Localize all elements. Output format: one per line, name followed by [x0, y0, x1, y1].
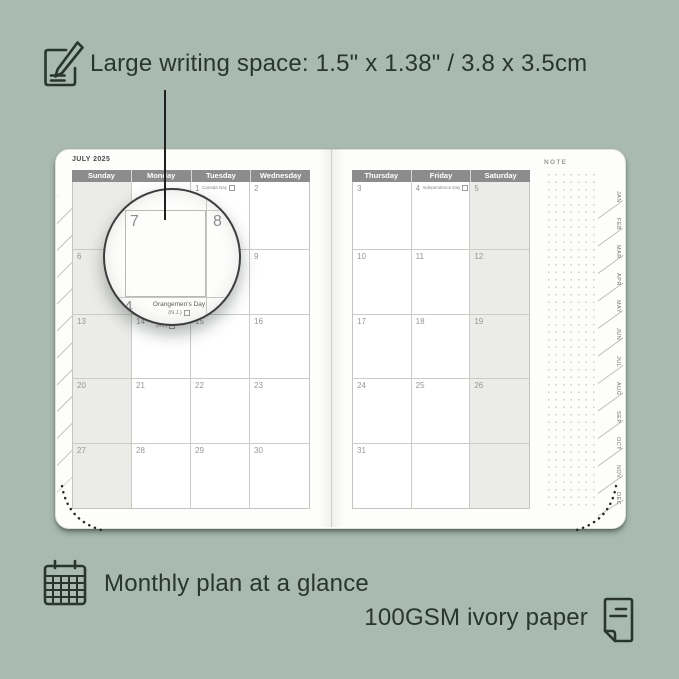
right-day-header-row: Thursday Friday Saturday: [352, 170, 530, 182]
day-header: Saturday: [470, 170, 530, 182]
day-header: Wednesday: [250, 170, 310, 182]
day-cell: 3: [353, 182, 412, 250]
day-cell: [470, 444, 529, 509]
day-cell: 16: [250, 315, 309, 380]
day-cell: 25: [412, 379, 471, 444]
day-cell: 31: [353, 444, 412, 509]
day-cell: 5: [470, 182, 529, 250]
day-cell: 11: [412, 250, 471, 315]
paper-icon: [597, 593, 637, 647]
day-cell: 26: [470, 379, 529, 444]
month-tab-jan: JAN: [605, 186, 621, 208]
day-header: Tuesday: [191, 170, 251, 182]
month-tab-feb: FEB: [605, 213, 621, 235]
month-tab-aug: AUG: [605, 378, 621, 400]
magnified-day: 8: [213, 213, 222, 231]
day-cell: 30: [250, 444, 309, 509]
month-tab-apr: APR: [605, 268, 621, 290]
pencil-note-icon: [40, 38, 84, 90]
day-cell: 19: [470, 315, 529, 380]
holiday-label: Canada Day: [202, 185, 247, 191]
month-tab-jun: JUN: [605, 323, 621, 345]
callout-pointer-line: [164, 90, 166, 220]
magnified-holiday-label: Orangemen's Day: [129, 301, 229, 308]
event-tag-icon: [184, 310, 190, 316]
month-tab-may: MAY: [605, 296, 621, 318]
event-tag-icon: [462, 185, 468, 191]
month-tab-mar: MAR: [605, 241, 621, 263]
day-header: Thursday: [352, 170, 411, 182]
day-cell: 15: [191, 315, 250, 380]
day-cell: 24: [353, 379, 412, 444]
day-cell: 20: [73, 379, 132, 444]
day-cell: 23: [250, 379, 309, 444]
day-cell: 13: [73, 315, 132, 380]
magnified-holiday-label: (N.J.): [129, 310, 229, 316]
day-cell: 17: [353, 315, 412, 380]
note-dot-grid: [545, 171, 600, 507]
day-cell: 9: [250, 250, 309, 315]
feature-text-writing-space: Large writing space: 1.5" x 1.38" / 3.8 …: [90, 50, 587, 78]
holiday-label: Independence Day: [423, 185, 468, 191]
right-month-grid: 3 4 Independence Day 5 10 11 12 17 18 19…: [352, 182, 530, 509]
day-cell: 22: [191, 379, 250, 444]
page-curl-dots-right: [560, 478, 640, 538]
month-tab-jul: JUL: [605, 351, 621, 373]
magnified-grid-line: [105, 297, 239, 298]
day-cell: 4 Independence Day: [412, 182, 471, 250]
day-header: Friday: [411, 170, 471, 182]
page-curl-dots-left: [38, 478, 118, 538]
day-cell: 21: [132, 379, 191, 444]
note-label: NOTE: [544, 159, 567, 166]
month-tab-oct: OCT: [605, 433, 621, 455]
magnifier-circle: 7 8 14 Orangemen's Day (N.J.): [103, 188, 241, 326]
feature-text-monthly-plan: Monthly plan at a glance: [104, 570, 369, 598]
left-day-header-row: Sunday Monday Tuesday Wednesday: [72, 170, 310, 182]
day-header: Monday: [131, 170, 191, 182]
month-title: JULY 2025: [72, 156, 110, 163]
day-cell: 29: [191, 444, 250, 509]
day-cell: 2: [250, 182, 309, 250]
day-cell: 18: [412, 315, 471, 380]
day-header: Sunday: [72, 170, 131, 182]
day-cell: [412, 444, 471, 509]
magnified-day: 7: [130, 213, 139, 231]
event-tag-icon: [229, 185, 235, 191]
month-tab-sep: SEP: [605, 406, 621, 428]
calendar-grid-icon: [41, 558, 89, 608]
spine-line: [331, 149, 332, 527]
day-cell: 10: [353, 250, 412, 315]
page-edge-hatching: [57, 196, 73, 494]
day-cell: 12: [470, 250, 529, 315]
feature-text-paper: 100GSM ivory paper: [364, 604, 588, 632]
day-cell: 28: [132, 444, 191, 509]
